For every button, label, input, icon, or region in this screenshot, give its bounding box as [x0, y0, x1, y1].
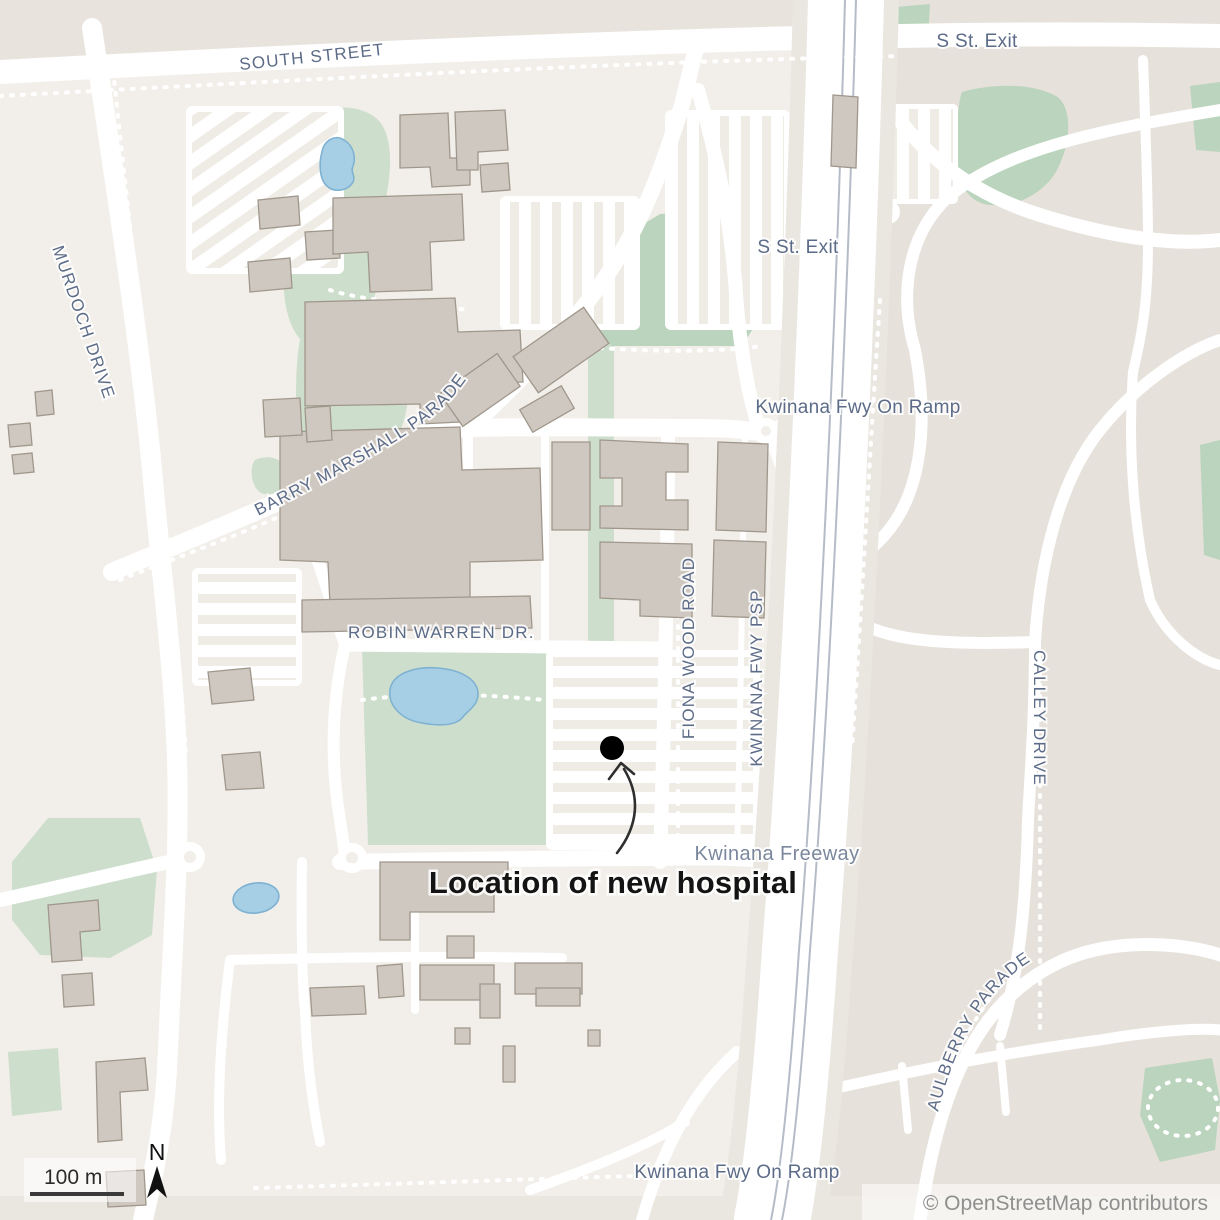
compass-label: N [149, 1139, 166, 1165]
roundabout-west-island [184, 851, 196, 863]
building [248, 258, 292, 292]
building [716, 442, 768, 532]
roundabout-mid-island [346, 852, 358, 864]
building [480, 163, 510, 192]
street-label-kwinana-freeway: Kwinana Freeway [695, 843, 860, 865]
hospital-location-marker [600, 736, 624, 760]
pond-north [320, 138, 354, 191]
green-south-west-small [8, 1048, 62, 1116]
road-sw-cross [230, 957, 562, 960]
scale-bar-label: 100 m [44, 1166, 102, 1189]
roundabout-ramp-island [761, 426, 771, 436]
annotation-label: Location of new hospital [429, 865, 797, 900]
attribution: © OpenStreetMap contributors [862, 1184, 1220, 1220]
street-label-calley-drive: CALLEY DRIVE [1030, 650, 1049, 786]
building [455, 1028, 470, 1044]
street-label-kwinana-fwy-psp: KWINANA FWY PSP [747, 589, 766, 766]
street-label-kwinana-on-ramp-bottom: Kwinana Fwy On Ramp [634, 1162, 839, 1183]
building [222, 752, 264, 790]
street-label-fiona-wood-road: FIONA WOOD ROAD [679, 557, 698, 739]
building [305, 406, 332, 442]
street-label-s-st-exit-top: S St. Exit [936, 31, 1018, 52]
building [377, 964, 404, 998]
building [208, 668, 254, 704]
building [588, 1030, 600, 1046]
building-train-station [831, 95, 858, 168]
street-label-s-st-exit-mid: S St. Exit [757, 237, 839, 258]
street-label-kwinana-on-ramp-mid: Kwinana Fwy On Ramp [755, 397, 960, 418]
scale-bar: 100 m [24, 1158, 136, 1202]
building [263, 398, 302, 437]
road-robin-warren-dr [345, 645, 665, 648]
building [35, 390, 54, 416]
building [552, 442, 590, 530]
attribution-text: © OpenStreetMap contributors [923, 1192, 1208, 1215]
building [8, 423, 32, 447]
building [536, 988, 580, 1006]
building [258, 196, 300, 229]
map-canvas[interactable]: SOUTH STREET S St. Exit S St. Exit Kwina… [0, 0, 1220, 1220]
building [12, 453, 34, 474]
street-label-robin-warren-dr: ROBIN WARREN DR. [348, 623, 535, 642]
green-median-strip [588, 333, 614, 658]
building [480, 984, 500, 1018]
parking-lot-hospital-site [546, 650, 760, 850]
building [503, 1046, 515, 1082]
building [62, 973, 94, 1007]
building [447, 936, 474, 958]
building [310, 986, 366, 1016]
map-svg[interactable]: SOUTH STREET S St. Exit S St. Exit Kwina… [0, 0, 1220, 1220]
